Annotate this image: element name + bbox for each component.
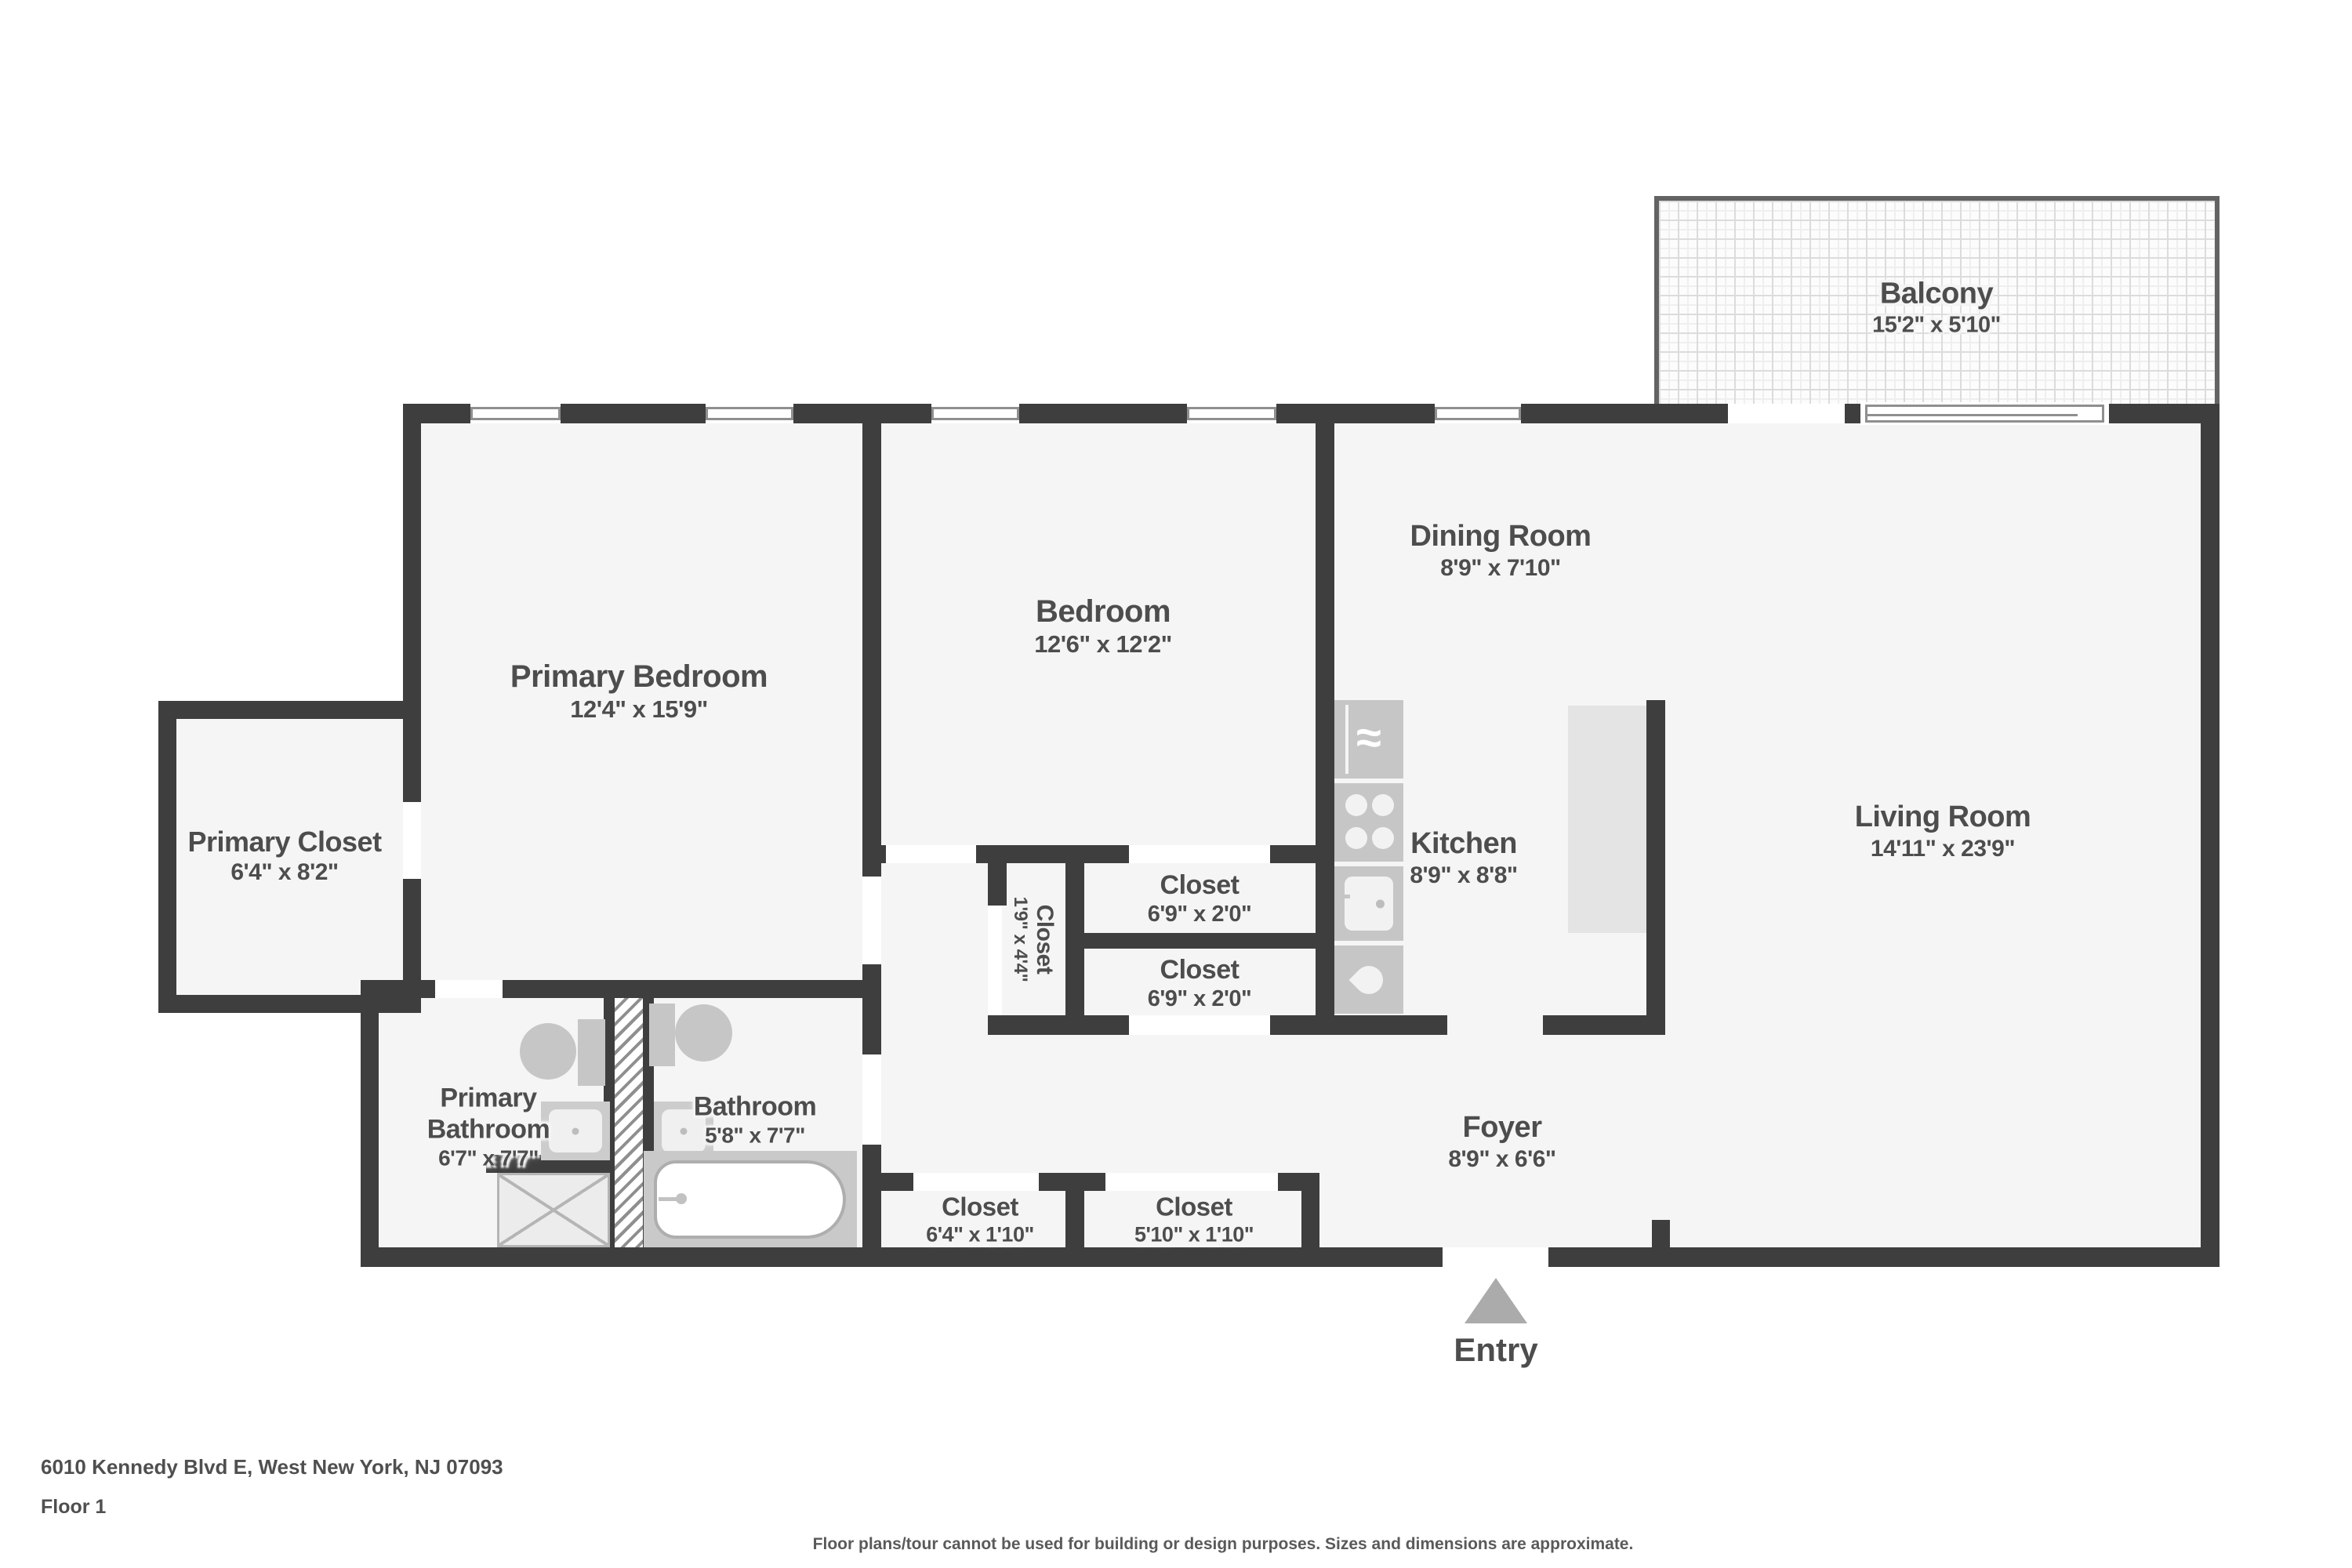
entry-arrow-icon: [1465, 1278, 1527, 1323]
wall: [361, 1247, 2220, 1267]
door-opening: [1105, 1173, 1278, 1191]
wall: [1065, 933, 1334, 949]
door-opening: [435, 980, 503, 998]
window: [931, 404, 1019, 423]
faucet-icon: [659, 1197, 679, 1201]
room-label-balcony: Balcony15'2" x 5'10": [1872, 276, 2001, 338]
room-dimensions: 12'6" x 12'2": [1034, 630, 1172, 659]
room-label-primary-closet: Primary Closet6'4" x 8'2": [187, 826, 381, 887]
door-opening: [1129, 845, 1270, 863]
room-dimensions: 12'4" x 15'9": [510, 695, 768, 724]
wall: [403, 404, 421, 982]
room-label-primary-bathroom: Primary Bathroom6'7" x 7'7": [427, 1082, 550, 1171]
shower-icon: [497, 1173, 610, 1247]
kitchen-sink-icon: [1334, 866, 1403, 941]
door-opening: [862, 1054, 881, 1145]
room-name: Closet: [1134, 1192, 1254, 1223]
room-dimensions: 8'9" x 8'8": [1410, 862, 1517, 889]
wall: [1646, 700, 1665, 1035]
toilet-icon: [520, 1023, 576, 1080]
toilet-icon: [649, 1004, 675, 1066]
room-name: Bedroom: [1034, 593, 1172, 630]
room-name: Balcony: [1872, 276, 2001, 311]
wall: [988, 863, 1007, 906]
wall: [862, 423, 881, 854]
room-label-hall-closet-tall: Closet1'9" x 4'4": [1008, 897, 1058, 982]
plumbing-hatch-wall: [615, 998, 643, 1247]
room-name: Kitchen: [1410, 826, 1517, 862]
sliding-door: [1860, 402, 2109, 425]
fridge-icon: ≈: [1334, 700, 1403, 779]
door-opening: [886, 845, 976, 863]
room-dimensions: 15'2" x 5'10": [1872, 311, 2001, 338]
toilet-icon: [675, 1004, 732, 1062]
vanity-sink-icon: [541, 1102, 610, 1160]
room-name: Closet: [1148, 869, 1252, 901]
wall: [158, 701, 421, 719]
room-label-bathroom: Bathroom5'8" x 7'7": [694, 1091, 817, 1148]
kitchen-counter: [1568, 706, 1646, 933]
floor-label: Floor 1: [41, 1496, 106, 1519]
window: [706, 404, 793, 423]
room-label-closet-upper: Closet6'9" x 2'0": [1148, 869, 1252, 927]
room-label-primary-bedroom: Primary Bedroom12'4" x 15'9": [510, 659, 768, 724]
toilet-icon: [578, 1019, 605, 1086]
room-dimensions: 6'4" x 8'2": [187, 859, 381, 887]
room-label-entry-closet-left: Closet6'4" x 1'10": [926, 1192, 1034, 1248]
stove-icon: [1334, 783, 1403, 862]
door-opening: [988, 906, 1002, 1015]
floor-plan: ≈ Balcony15'2" x 5'10"Primary Bedroom12'…: [0, 0, 2352, 1568]
wall: [361, 980, 379, 1267]
room-label-foyer: Foyer8'9" x 6'6": [1448, 1110, 1555, 1173]
room-dimensions: 8'9" x 7'10": [1410, 554, 1592, 582]
room-name: Primary Closet: [187, 826, 381, 858]
room-dimensions: 6'4" x 1'10": [926, 1223, 1034, 1248]
room-label-bedroom: Bedroom12'6" x 12'2": [1034, 593, 1172, 659]
wall: [1065, 863, 1084, 1035]
room-dimensions: 8'9" x 6'6": [1448, 1145, 1555, 1173]
room-label-kitchen: Kitchen8'9" x 8'8": [1410, 826, 1517, 889]
door-opening: [1728, 404, 1845, 423]
door-opening: [403, 802, 421, 879]
room-name: Closet: [1148, 954, 1252, 985]
room-dimensions: 5'10" x 1'10": [1134, 1223, 1254, 1248]
room-dimensions: 6'9" x 2'0": [1148, 985, 1252, 1012]
room-name: Foyer: [1448, 1110, 1555, 1145]
room-dimensions: 1'9" x 4'4": [1008, 897, 1030, 982]
room-label-closet-lower: Closet6'9" x 2'0": [1148, 954, 1252, 1012]
wall: [1301, 1173, 1319, 1247]
door-opening: [1129, 1015, 1270, 1035]
room-dimensions: 5'8" x 7'7": [694, 1123, 817, 1149]
door-opening: [913, 1173, 1039, 1191]
room-name: Primary Bathroom: [427, 1082, 550, 1145]
disclaimer-text: Floor plans/tour cannot be used for buil…: [813, 1535, 1634, 1554]
passage-opening: [1447, 1015, 1543, 1035]
window: [1187, 404, 1276, 423]
door-opening: [1443, 1247, 1548, 1267]
room-name: Primary Bedroom: [510, 659, 768, 695]
room-name: Dining Room: [1410, 519, 1592, 554]
wall: [1065, 1173, 1084, 1247]
entry-label: Entry: [1454, 1331, 1537, 1369]
room-dimensions: 6'9" x 2'0": [1148, 901, 1252, 927]
address-text: 6010 Kennedy Blvd E, West New York, NJ 0…: [41, 1455, 503, 1479]
dishwasher-icon: [1334, 946, 1403, 1014]
room-name: Bathroom: [694, 1091, 817, 1122]
room-name: Living Room: [1855, 800, 2031, 835]
window: [1435, 404, 1521, 423]
room-dimensions: 14'11" x 23'9": [1855, 835, 2031, 862]
window: [470, 404, 561, 423]
room-label-living-room: Living Room14'11" x 23'9": [1855, 800, 2031, 862]
wall: [2201, 404, 2220, 1267]
room-label-entry-closet-right: Closet5'10" x 1'10": [1134, 1192, 1254, 1248]
room-dimensions: 6'7" x 7'7": [427, 1145, 550, 1171]
door-opening: [862, 877, 881, 964]
wall: [1652, 1220, 1670, 1247]
room-name: Closet: [1030, 897, 1058, 982]
wall: [158, 701, 176, 1013]
room-name: Closet: [926, 1192, 1034, 1223]
room-label-dining-room: Dining Room8'9" x 7'10": [1410, 519, 1592, 582]
